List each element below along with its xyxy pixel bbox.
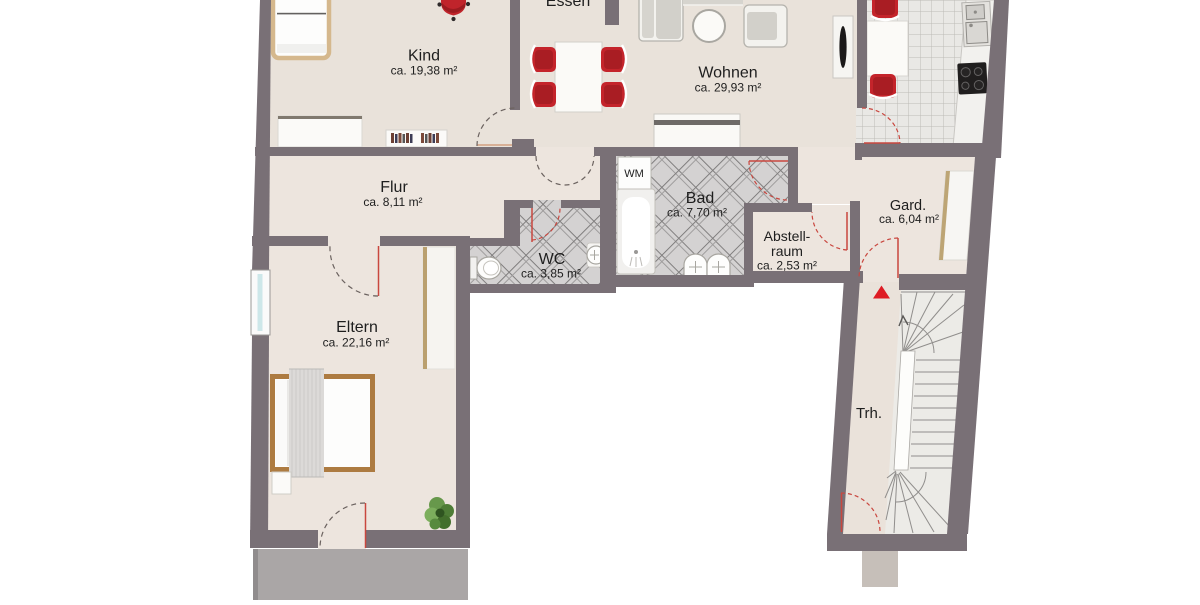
svg-text:Trh.: Trh. [856, 405, 882, 422]
svg-text:ca. 7,70 m²: ca. 7,70 m² [667, 206, 727, 220]
svg-text:ca. 3,85 m²: ca. 3,85 m² [521, 267, 581, 281]
svg-text:ca. 6,04 m²: ca. 6,04 m² [879, 212, 939, 226]
svg-text:ca. 22,16 m²: ca. 22,16 m² [323, 336, 390, 350]
svg-text:WC: WC [539, 251, 566, 268]
svg-text:Eltern: Eltern [336, 319, 378, 336]
svg-text:ca. 2,53 m²: ca. 2,53 m² [757, 259, 817, 273]
svg-text:ca. 19,38 m²: ca. 19,38 m² [391, 64, 458, 78]
svg-text:ca. 8,11 m²: ca. 8,11 m² [363, 195, 422, 209]
svg-text:WM: WM [624, 168, 644, 180]
svg-text:Essen: Essen [546, 0, 590, 10]
svg-text:Bad: Bad [686, 190, 714, 207]
svg-text:ca. 29,93 m²: ca. 29,93 m² [695, 81, 762, 95]
svg-text:Abstell-: Abstell- [764, 228, 811, 244]
svg-text:Kind: Kind [408, 48, 440, 65]
svg-text:Flur: Flur [380, 179, 408, 196]
svg-text:Wohnen: Wohnen [698, 65, 757, 82]
svg-text:raum: raum [771, 243, 803, 259]
